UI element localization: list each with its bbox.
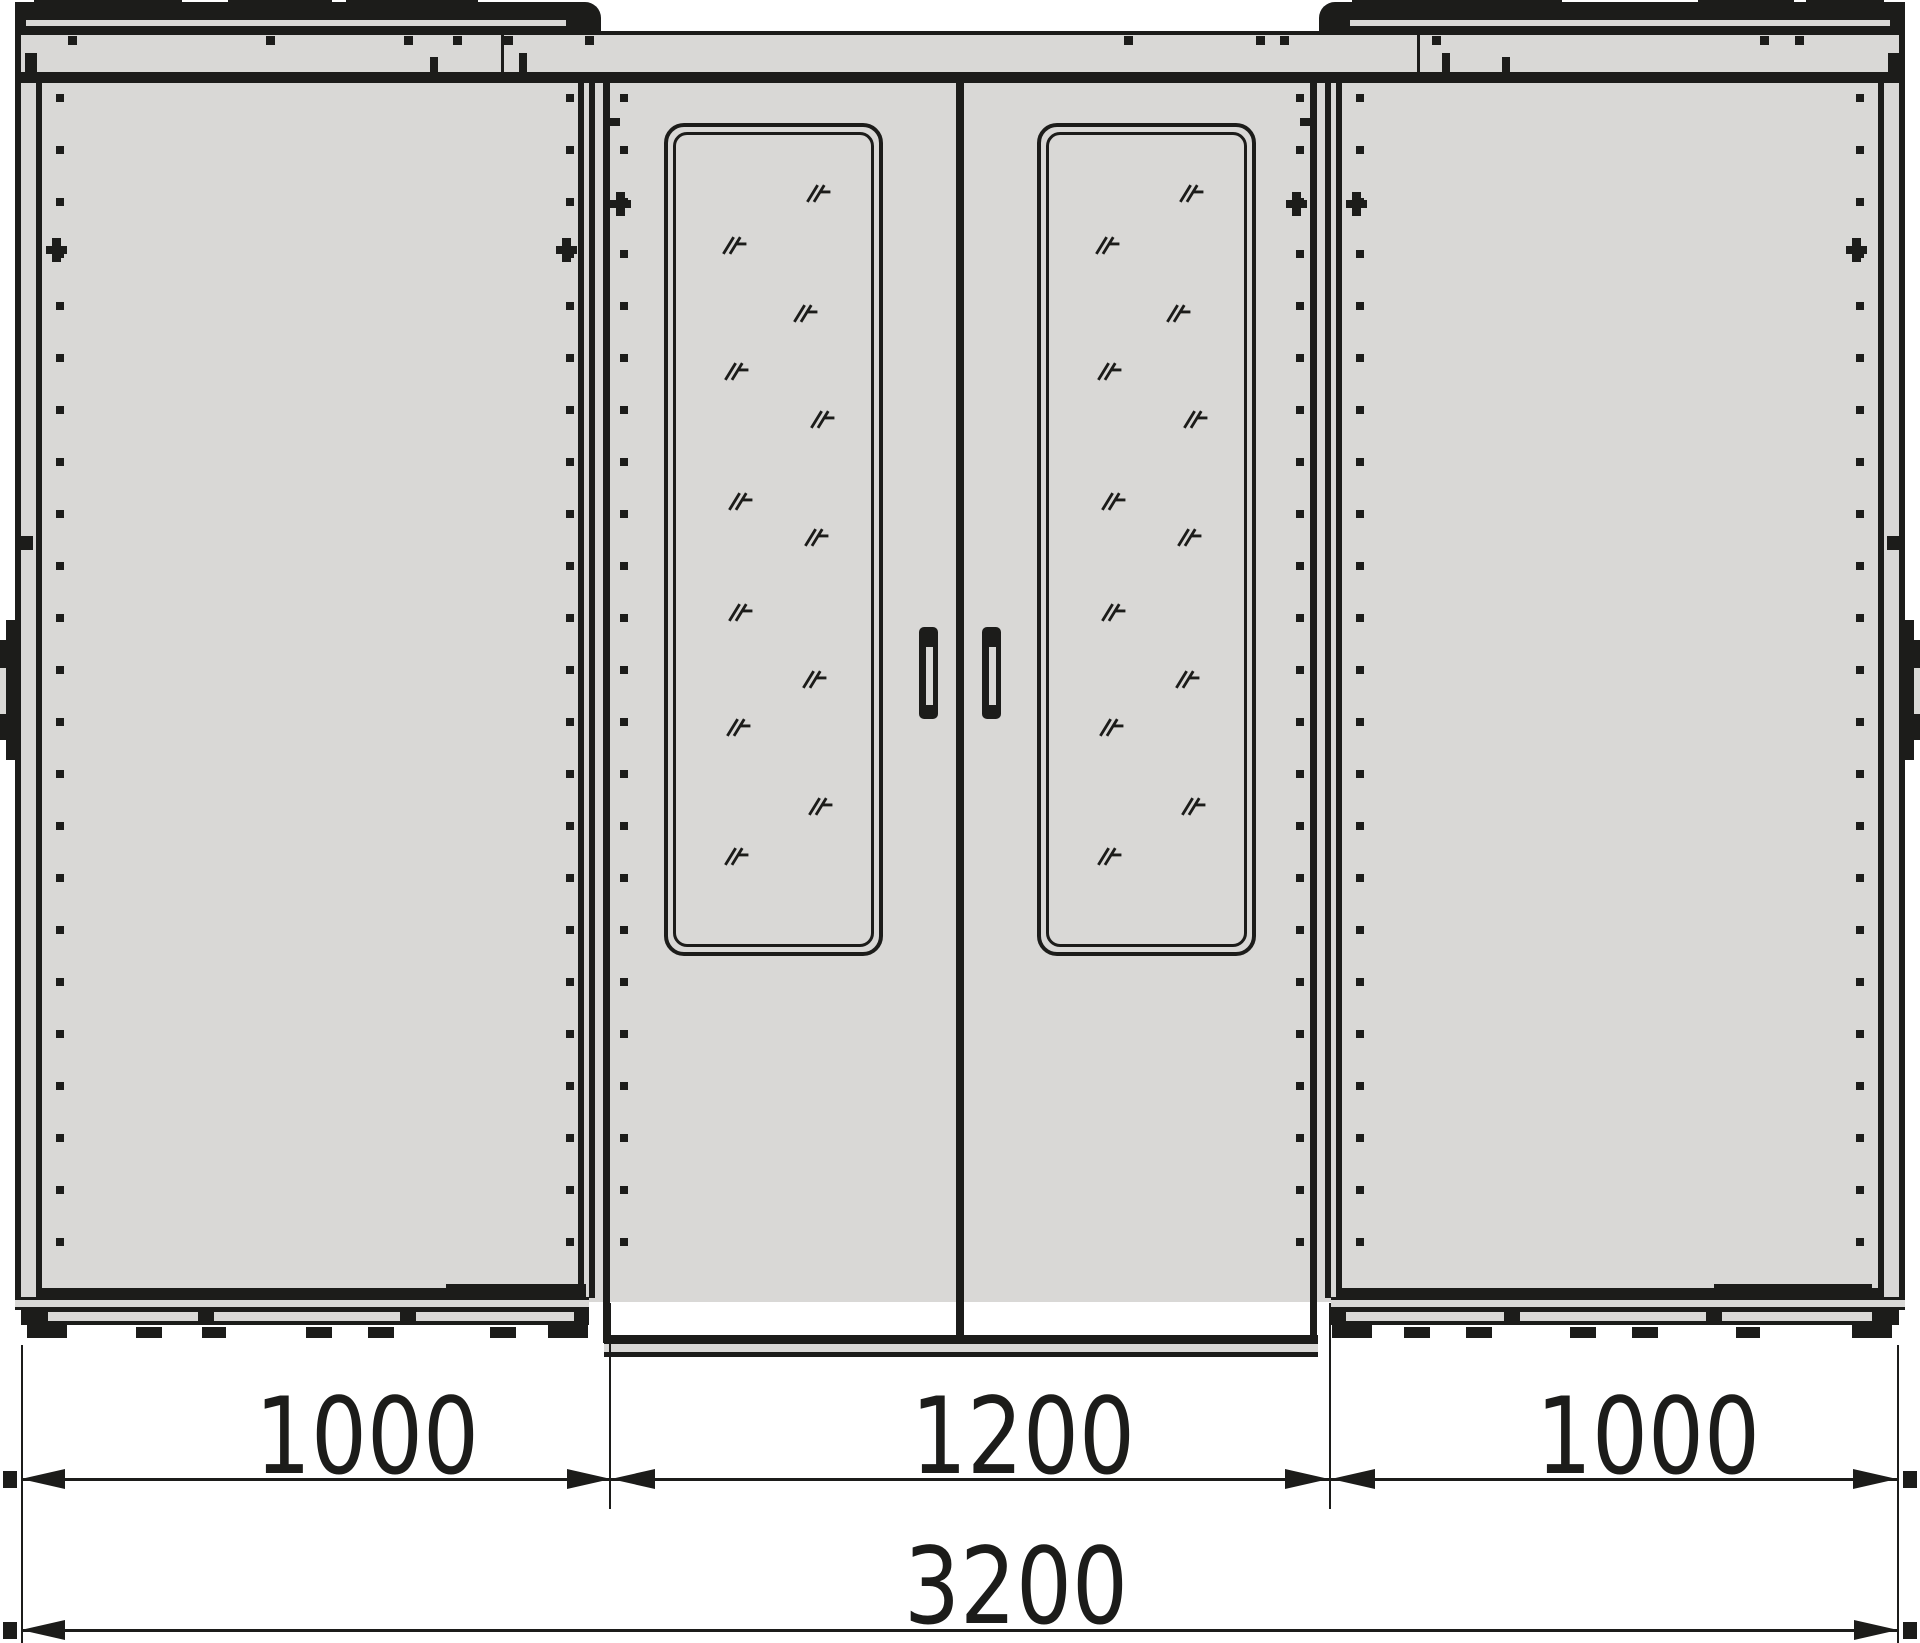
plinth-panel (1520, 1312, 1706, 1321)
left-door-edge (578, 77, 584, 1289)
cage-nut-cross (562, 238, 571, 262)
right-hinge-slot (1914, 668, 1920, 714)
arrowhead-icon (567, 1469, 611, 1489)
center-door-bottom (604, 1335, 1318, 1344)
dimension-overshoot (3, 1622, 17, 1639)
dimension-label-right: 1000 (1536, 1384, 1760, 1490)
glass-hatch-icon (803, 182, 833, 204)
cage-nut-cross (1292, 192, 1301, 216)
glass-hatch-icon (723, 716, 753, 738)
left-hinge (6, 620, 16, 642)
cage-nut-cross (1852, 238, 1861, 262)
hole-row (56, 94, 64, 1286)
glass-hatch-icon (725, 490, 755, 512)
top-rail-divider (1417, 31, 1420, 77)
right-base-rail (1331, 1297, 1905, 1310)
cage-nut-cross (1352, 192, 1361, 216)
arrowhead-icon (21, 1620, 65, 1640)
plinth-foot (1852, 1325, 1892, 1338)
glass-hatch-icon (725, 601, 755, 623)
glass-hatch-icon (1180, 408, 1210, 430)
right-hinge (1904, 738, 1914, 760)
left-roof-bar (15, 2, 601, 31)
glass-hatch-icon (1098, 490, 1128, 512)
arrowhead-icon (1853, 1469, 1897, 1489)
left-door-handle-slot (926, 647, 933, 705)
hole-row (1296, 94, 1304, 1286)
door-tick (1300, 118, 1316, 126)
plinth-foot (1570, 1327, 1596, 1338)
bay-divider (1325, 77, 1331, 1298)
glass-hatch-icon (1174, 526, 1204, 548)
hole-row (1856, 94, 1864, 1286)
arrowhead-icon (611, 1469, 655, 1489)
roof-tick (1432, 36, 1441, 45)
hole-row (566, 94, 574, 1286)
plinth-panel (1722, 1312, 1872, 1321)
roof-tick (585, 36, 594, 45)
glass-hatch-icon (1096, 716, 1126, 738)
roof-tick (1795, 36, 1804, 45)
roof-tick (68, 36, 77, 45)
rail-bolt (430, 57, 438, 73)
glass-hatch-icon (799, 668, 829, 690)
glass-hatch-icon (719, 234, 749, 256)
center-sill (604, 1344, 1318, 1352)
glass-hatch-icon (1178, 795, 1208, 817)
roof-tick (404, 36, 413, 45)
glass-hatch-icon (721, 845, 751, 867)
glass-hatch-icon (1172, 668, 1202, 690)
left-door-handle (919, 627, 938, 719)
rail-bolt (25, 53, 37, 73)
hole-row (620, 94, 628, 1286)
right-door-edge (1336, 77, 1342, 1289)
arrowhead-icon (1285, 1469, 1329, 1489)
plinth-foot (27, 1325, 67, 1338)
right-hinge (1904, 620, 1914, 642)
glass-hatch-icon (1094, 845, 1124, 867)
roof-tick (504, 36, 513, 45)
roof-tick (453, 36, 462, 45)
right-door-window-pane (1046, 132, 1247, 947)
right-door-window (1037, 123, 1256, 956)
plinth-foot (1404, 1327, 1430, 1338)
extension-line (1897, 1345, 1899, 1643)
right-roof-bar (1319, 2, 1905, 31)
plinth-panel (416, 1312, 574, 1321)
plinth-foot (548, 1325, 588, 1338)
plinth-panel (1346, 1312, 1504, 1321)
left-door-edge (36, 77, 42, 1289)
glass-hatch-icon (1163, 302, 1193, 324)
plinth-foot (1466, 1327, 1492, 1338)
plinth-foot (136, 1327, 162, 1338)
plinth-foot (202, 1327, 226, 1338)
roof-tick (266, 36, 275, 45)
dimension-overshoot (1903, 1622, 1917, 1639)
center-left-door-edge (603, 77, 610, 1343)
dimension-label-total: 3200 (904, 1534, 1128, 1640)
left-hinge-slot (0, 668, 6, 714)
center-door-gap (956, 77, 964, 1343)
right-door-bottom (1714, 1284, 1872, 1297)
plinth-foot (1632, 1327, 1658, 1338)
center-sill-line (604, 1352, 1318, 1357)
glass-hatch-icon (721, 360, 751, 382)
arrowhead-icon (1854, 1620, 1898, 1640)
arrowhead-icon (21, 1469, 65, 1489)
glass-hatch-icon (1092, 234, 1122, 256)
top-rail (15, 31, 1905, 77)
enclosure-drawing: 1000 1200 1000 3200 (0, 0, 1920, 1643)
rail-bolt (1442, 53, 1450, 73)
plinth-foot (1332, 1325, 1372, 1338)
left-door-bottom (446, 1284, 586, 1297)
dimension-overshoot (3, 1471, 17, 1488)
dimension-overshoot (1903, 1471, 1917, 1488)
right-roof-stripe (1350, 20, 1890, 26)
rail-bolt (519, 53, 527, 73)
roof-tick (1124, 36, 1133, 45)
plinth-foot (1736, 1327, 1760, 1338)
bay-divider (589, 77, 595, 1298)
right-door-edge (1878, 77, 1884, 1289)
left-hinge (6, 738, 16, 760)
side-tick (1887, 536, 1899, 550)
glass-hatch-icon (1094, 360, 1124, 382)
rail-bolt (1502, 57, 1510, 73)
dimension-label-center: 1200 (911, 1384, 1135, 1490)
left-door-window (664, 123, 883, 956)
side-tick (21, 536, 33, 550)
plinth-panel (48, 1312, 198, 1321)
left-roof-stripe (26, 20, 566, 26)
glass-hatch-icon (1098, 601, 1128, 623)
glass-hatch-icon (805, 795, 835, 817)
center-right-door-edge (1310, 77, 1317, 1343)
plinth-panel (214, 1312, 400, 1321)
roof-tick (1256, 36, 1265, 45)
right-door-handle (982, 627, 1001, 719)
cage-nut-cross (616, 192, 625, 216)
hole-row (1356, 94, 1364, 1286)
left-door-window-pane (673, 132, 874, 947)
left-base-rail (15, 1297, 589, 1310)
right-door-handle-slot (989, 647, 996, 705)
roof-tick (1280, 36, 1289, 45)
arrowhead-icon (1331, 1469, 1375, 1489)
plinth-foot (490, 1327, 516, 1338)
door-tick (604, 118, 620, 126)
extension-line (21, 1345, 23, 1643)
dimension-label-left: 1000 (255, 1384, 479, 1490)
plinth-foot (306, 1327, 332, 1338)
roof-tick (1760, 36, 1769, 45)
plinth-foot (368, 1327, 394, 1338)
glass-hatch-icon (790, 302, 820, 324)
glass-hatch-icon (1176, 182, 1206, 204)
glass-hatch-icon (801, 526, 831, 548)
cage-nut-cross (52, 238, 61, 262)
glass-hatch-icon (807, 408, 837, 430)
